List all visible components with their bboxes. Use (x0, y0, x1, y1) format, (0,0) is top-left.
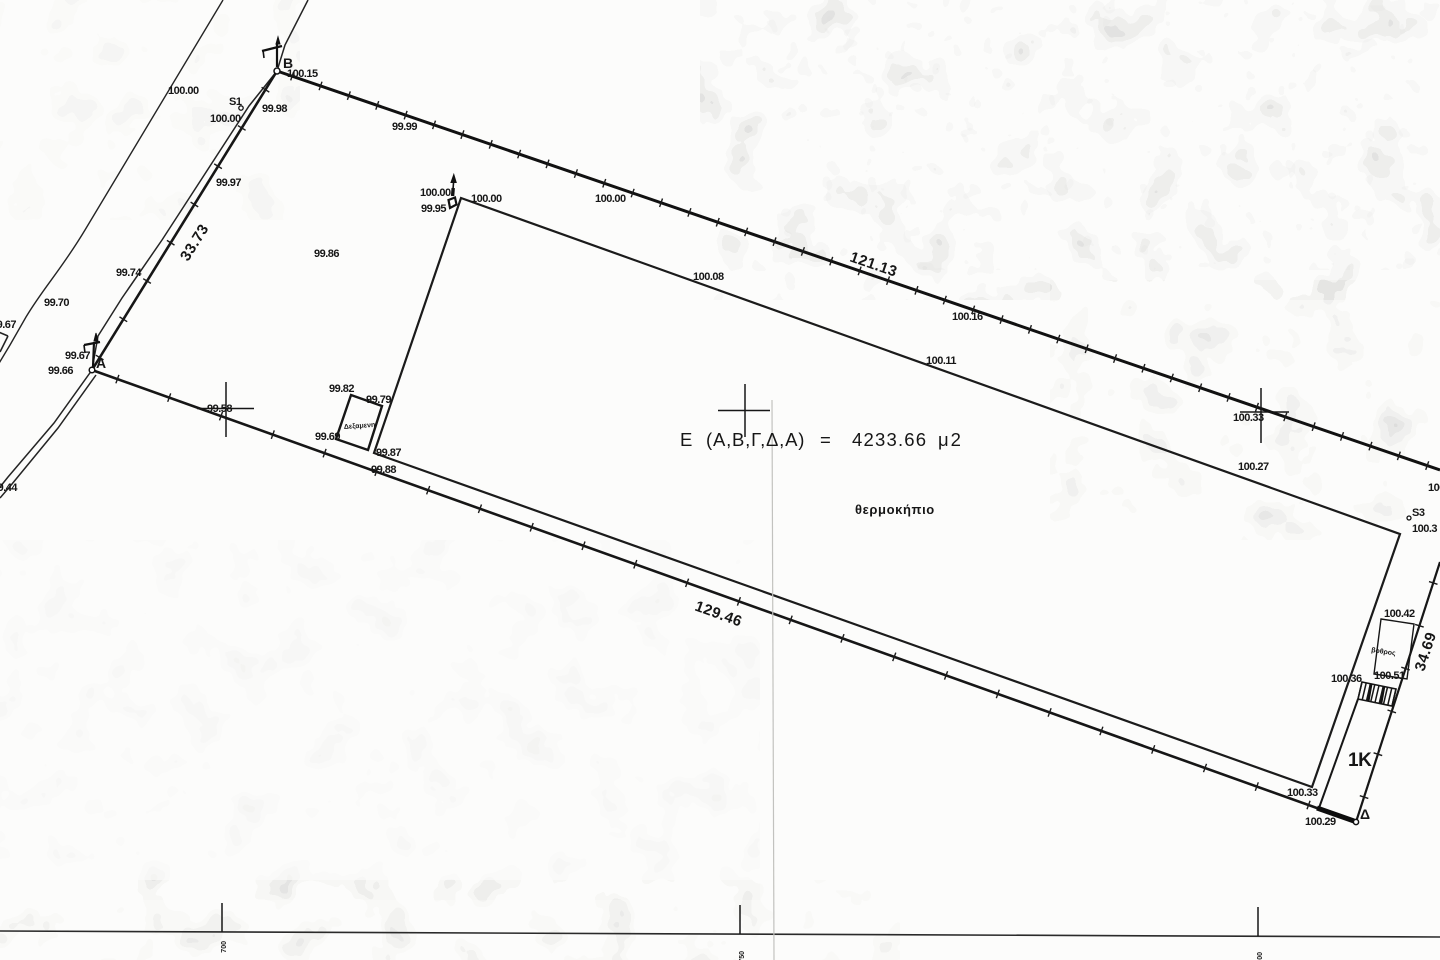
svg-text:S1: S1 (229, 96, 242, 108)
svg-text:800: 800 (1257, 952, 1264, 960)
svg-text:99.70: 99.70 (44, 297, 69, 309)
svg-text:100.42: 100.42 (1384, 608, 1415, 620)
svg-text:θερμοκήπιο: θερμοκήπιο (855, 502, 935, 517)
svg-text:700: 700 (221, 941, 228, 953)
svg-text:Ε(Α,Β,Γ,Δ,Α)=4233.66μ2: Ε(Α,Β,Γ,Δ,Α)=4233.66μ2 (680, 429, 963, 450)
svg-text:100.00: 100.00 (168, 85, 199, 97)
svg-text:99.97: 99.97 (216, 177, 241, 189)
svg-text:100.33: 100.33 (1287, 787, 1318, 799)
svg-text:100.15: 100.15 (287, 68, 318, 80)
svg-text:100.00: 100.00 (595, 193, 626, 205)
svg-text:750: 750 (739, 951, 746, 960)
svg-text:A: A (96, 355, 106, 371)
svg-text:99.67: 99.67 (65, 350, 90, 362)
svg-text:100.11: 100.11 (926, 355, 956, 367)
svg-text:100.3: 100.3 (1412, 523, 1437, 535)
svg-text:99.58: 99.58 (207, 403, 232, 415)
svg-text:100.00: 100.00 (471, 193, 502, 205)
svg-text:1K: 1K (1348, 750, 1372, 771)
svg-text:99.86: 99.86 (314, 248, 339, 260)
svg-text:99.44: 99.44 (0, 482, 18, 494)
svg-text:99.74: 99.74 (116, 267, 142, 279)
svg-text:99.87: 99.87 (376, 447, 401, 459)
svg-text:99.66: 99.66 (48, 365, 73, 377)
svg-text:Δ: Δ (1360, 806, 1370, 822)
svg-text:99.82: 99.82 (329, 383, 354, 395)
svg-text:99.79: 99.79 (366, 394, 391, 406)
svg-text:99.67: 99.67 (0, 319, 16, 331)
svg-text:100.00: 100.00 (420, 187, 451, 199)
svg-text:99.88: 99.88 (371, 464, 396, 476)
svg-text:100.27: 100.27 (1238, 461, 1269, 473)
svg-text:99.99: 99.99 (392, 121, 417, 133)
svg-text:99.95: 99.95 (421, 203, 446, 215)
svg-text:100.08: 100.08 (693, 271, 724, 283)
svg-text:99.69: 99.69 (315, 431, 340, 443)
svg-text:100.36: 100.36 (1331, 673, 1362, 685)
svg-text:100.29: 100.29 (1305, 816, 1336, 828)
svg-text:100.33: 100.33 (1233, 412, 1264, 424)
svg-text:99.98: 99.98 (262, 103, 287, 115)
svg-text:100.00: 100.00 (210, 113, 241, 125)
svg-text:100.51: 100.51 (1374, 670, 1405, 682)
svg-text:S3: S3 (1412, 507, 1425, 519)
svg-text:100.4: 100.4 (1428, 482, 1440, 494)
svg-text:100.16: 100.16 (952, 311, 983, 323)
